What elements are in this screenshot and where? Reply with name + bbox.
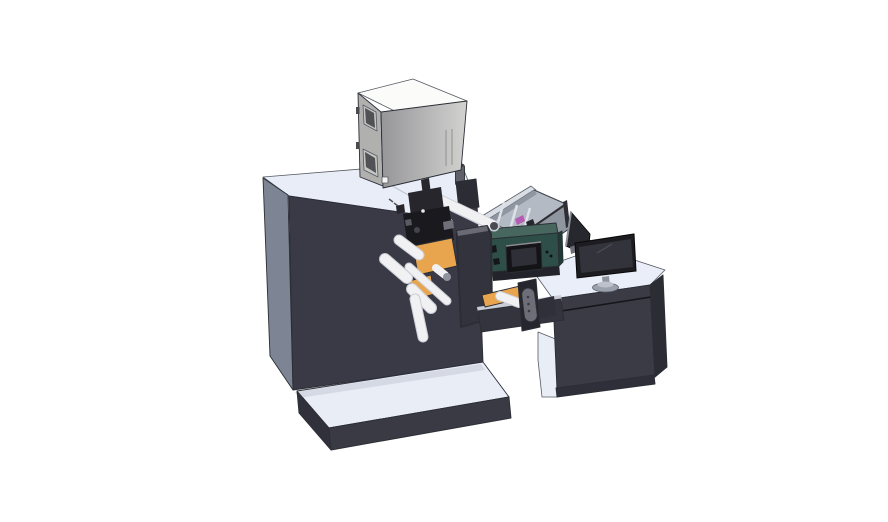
top-cabinet <box>356 79 467 188</box>
hmi-right-face <box>558 231 563 266</box>
machine-left-face <box>263 178 293 390</box>
sensor-pill-dot-1 <box>527 296 530 299</box>
cabinet-hinge-2 <box>356 142 360 149</box>
top-roller-end-cap <box>490 222 498 230</box>
sensor-pill-dot-2 <box>527 303 530 306</box>
desk-front-face <box>553 285 655 390</box>
cad-viewport <box>0 0 888 522</box>
machine-front-face <box>289 196 483 390</box>
cabinet-hinge-1 <box>356 107 360 114</box>
head-gear-hub <box>414 227 420 233</box>
cad-render-svg <box>0 0 888 522</box>
roller-stub-cap <box>443 273 451 281</box>
roller-stub <box>436 268 445 275</box>
hmi-screen <box>511 247 537 267</box>
hmi-button-1 <box>546 251 549 254</box>
cabinet-corner-square <box>382 177 388 183</box>
head-gray-small <box>405 219 412 226</box>
head-highlight-dot <box>421 209 425 213</box>
sensor-pill-dot-3 <box>528 310 531 313</box>
hmi-connector-2 <box>493 258 500 265</box>
hmi-button-2 <box>550 255 553 258</box>
monitor-base-top <box>598 282 614 288</box>
head-gear-small <box>429 230 437 238</box>
hmi-control-box <box>489 223 563 281</box>
